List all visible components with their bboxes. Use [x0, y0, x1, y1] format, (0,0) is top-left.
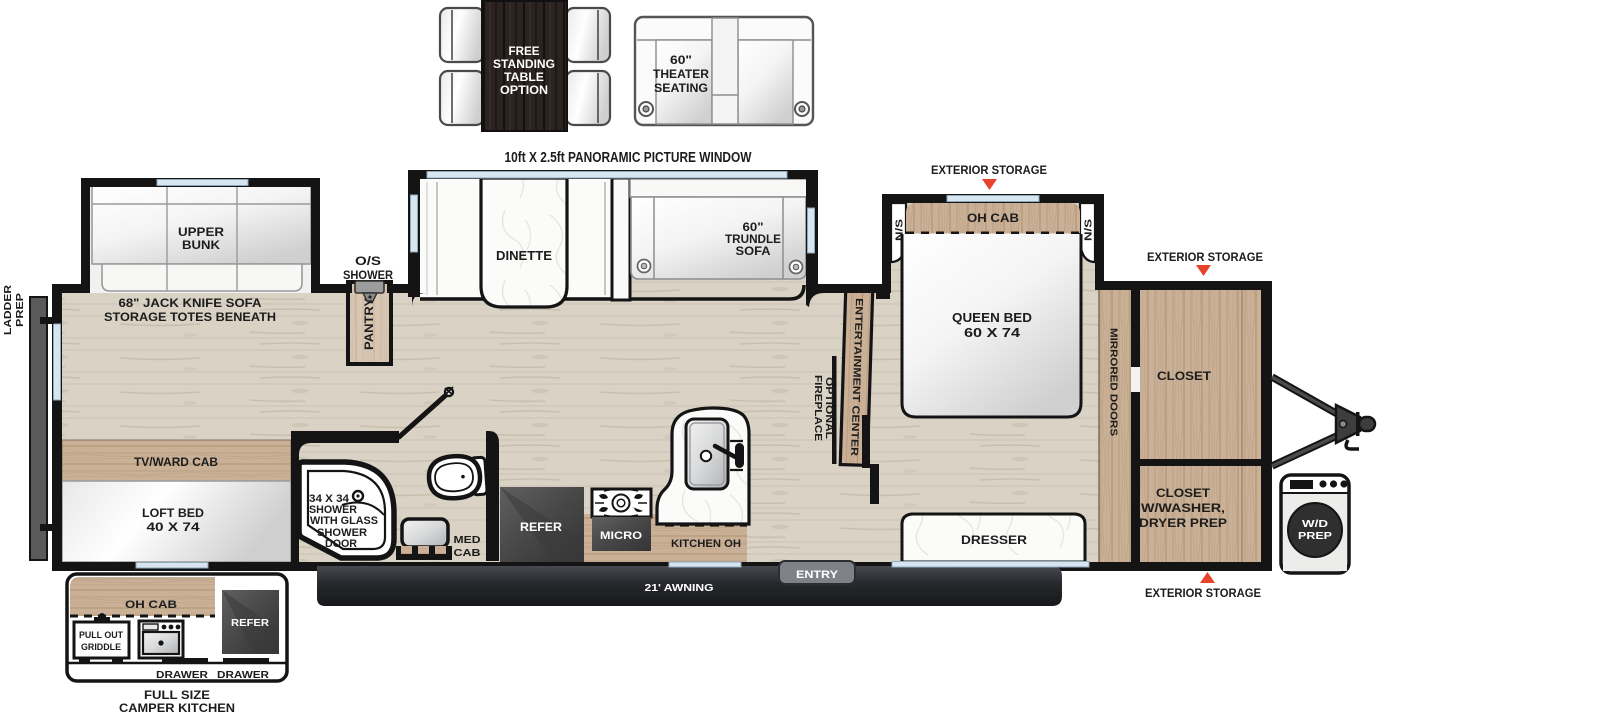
- svg-text:OH CAB: OH CAB: [967, 213, 1019, 225]
- svg-text:OPTIONAL: OPTIONAL: [823, 377, 834, 439]
- svg-text:21' AWNING: 21' AWNING: [645, 582, 714, 594]
- svg-text:DRYER PREP: DRYER PREP: [1139, 516, 1227, 530]
- svg-text:LADDER: LADDER: [2, 285, 14, 335]
- svg-text:CAMPER KITCHEN: CAMPER KITCHEN: [119, 701, 235, 713]
- svg-text:PANTRY: PANTRY: [364, 298, 376, 350]
- svg-text:68" JACK KNIFE SOFA: 68" JACK KNIFE SOFA: [119, 296, 262, 310]
- svg-text:60 X 74: 60 X 74: [964, 326, 1020, 340]
- svg-text:OH CAB: OH CAB: [125, 599, 177, 611]
- svg-text:MICRO: MICRO: [600, 530, 642, 542]
- svg-text:CLOSET: CLOSET: [1157, 369, 1212, 383]
- svg-text:SOFA: SOFA: [736, 246, 771, 258]
- svg-text:LOFT BED: LOFT BED: [142, 506, 204, 520]
- svg-text:CAB: CAB: [454, 547, 481, 559]
- svg-text:SHOWER: SHOWER: [343, 270, 394, 282]
- svg-text:60": 60": [743, 222, 764, 234]
- svg-text:EXTERIOR STORAGE: EXTERIOR STORAGE: [1147, 252, 1263, 264]
- svg-text:DOOR: DOOR: [325, 538, 357, 550]
- svg-text:STANDING: STANDING: [493, 57, 555, 71]
- svg-text:STORAGE TOTES BENEATH: STORAGE TOTES BENEATH: [104, 310, 276, 324]
- svg-text:SEATING: SEATING: [654, 81, 708, 95]
- svg-text:MED: MED: [454, 534, 481, 546]
- svg-text:PULL OUT: PULL OUT: [79, 630, 123, 641]
- svg-text:FREE: FREE: [509, 44, 540, 58]
- svg-text:KITCHEN OH: KITCHEN OH: [671, 538, 741, 550]
- svg-text:PREP: PREP: [1298, 530, 1332, 542]
- svg-text:N/S: N/S: [1083, 219, 1095, 241]
- svg-text:GRIDDLE: GRIDDLE: [81, 642, 121, 653]
- svg-text:REFER: REFER: [231, 617, 269, 629]
- svg-text:PREP: PREP: [14, 293, 26, 327]
- svg-text:REFER: REFER: [520, 522, 563, 534]
- svg-text:DINETTE: DINETTE: [496, 249, 552, 263]
- svg-text:BUNK: BUNK: [182, 238, 220, 252]
- svg-text:EXTERIOR STORAGE: EXTERIOR STORAGE: [1145, 588, 1261, 600]
- svg-text:TRUNDLE: TRUNDLE: [725, 234, 781, 246]
- svg-text:DRAWER: DRAWER: [217, 669, 269, 681]
- svg-text:MIRRORED DOORS: MIRRORED DOORS: [1108, 328, 1120, 436]
- svg-text:O/S: O/S: [355, 256, 381, 268]
- svg-text:CLOSET: CLOSET: [1156, 486, 1211, 500]
- svg-text:WITH GLASS: WITH GLASS: [310, 515, 378, 527]
- svg-text:10ft X 2.5ft PANORAMIC PICTURE: 10ft X 2.5ft PANORAMIC PICTURE WINDOW: [505, 150, 752, 166]
- svg-text:W/D: W/D: [1302, 518, 1329, 530]
- svg-text:FIREPLACE: FIREPLACE: [812, 375, 823, 441]
- svg-text:FULL SIZE: FULL SIZE: [144, 688, 210, 702]
- svg-text:OPTION: OPTION: [500, 83, 548, 97]
- svg-text:DRAWER: DRAWER: [156, 669, 208, 681]
- svg-text:UPPER: UPPER: [178, 225, 224, 239]
- svg-text:THEATER: THEATER: [653, 67, 709, 81]
- svg-text:EXTERIOR STORAGE: EXTERIOR STORAGE: [931, 165, 1047, 177]
- svg-text:ENTRY: ENTRY: [796, 569, 839, 581]
- svg-text:DRESSER: DRESSER: [961, 533, 1027, 547]
- svg-text:40 X 74: 40 X 74: [147, 520, 200, 534]
- svg-text:TABLE: TABLE: [504, 70, 544, 84]
- svg-text:60": 60": [670, 53, 692, 67]
- svg-text:QUEEN BED: QUEEN BED: [952, 311, 1032, 325]
- svg-text:W/WASHER,: W/WASHER,: [1141, 501, 1225, 515]
- svg-text:TV/WARD CAB: TV/WARD CAB: [134, 457, 218, 469]
